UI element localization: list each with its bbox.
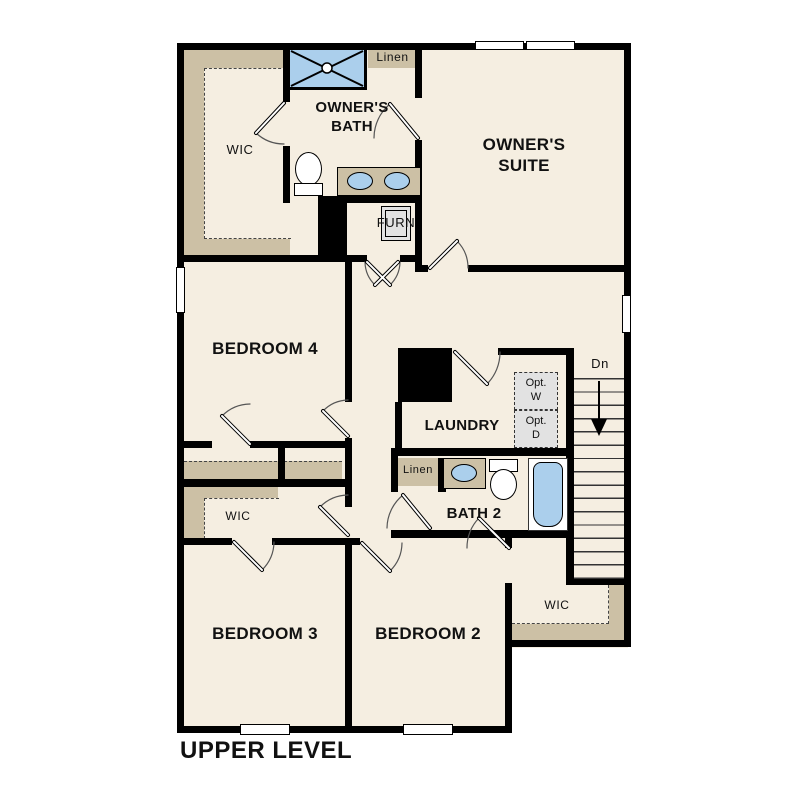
stairs-down-arrow [591, 381, 607, 436]
floor-plan: Opt. W Opt. D [0, 0, 810, 810]
bath2-label: BATH 2 [434, 505, 514, 524]
stairs-down-label: Dn [580, 356, 620, 372]
shower-glass-lines [291, 51, 363, 86]
furnace-label: FURN [366, 215, 426, 231]
bedroom3-wic-label: WIC [208, 509, 268, 524]
owners-wic-label: WIC [210, 142, 270, 158]
linen-upper-label: Linen [368, 50, 417, 65]
bedroom3-label: BEDROOM 3 [185, 623, 345, 644]
plan-linework [0, 0, 810, 810]
linen-bath2-label: Linen [398, 464, 438, 478]
bedroom4-label: BEDROOM 4 [185, 338, 345, 359]
bedroom2-wic-label: WIC [527, 598, 587, 613]
laundry-label: LAUNDRY [407, 417, 517, 436]
bedroom2-label: BEDROOM 2 [358, 623, 498, 644]
owners-bath-label: OWNER'S BATH [306, 99, 398, 137]
owners-suite-label: OWNER'S SUITE [462, 134, 586, 177]
plan-title: UPPER LEVEL [180, 736, 430, 766]
